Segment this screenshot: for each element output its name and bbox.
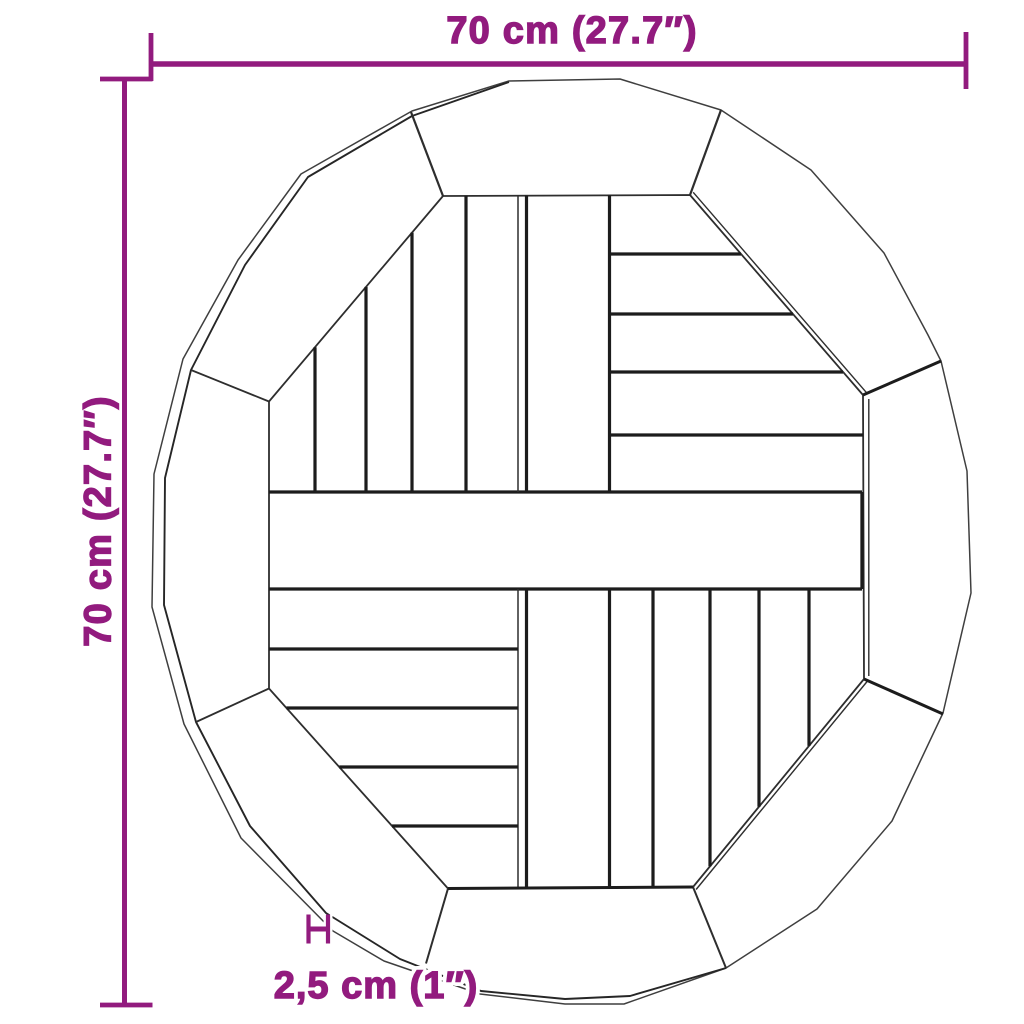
svg-text:2,5 cm (1″): 2,5 cm (1″)	[274, 965, 479, 1007]
svg-text:70 cm (27.7″): 70 cm (27.7″)	[78, 395, 120, 646]
svg-text:70 cm (27.7″): 70 cm (27.7″)	[446, 10, 697, 52]
